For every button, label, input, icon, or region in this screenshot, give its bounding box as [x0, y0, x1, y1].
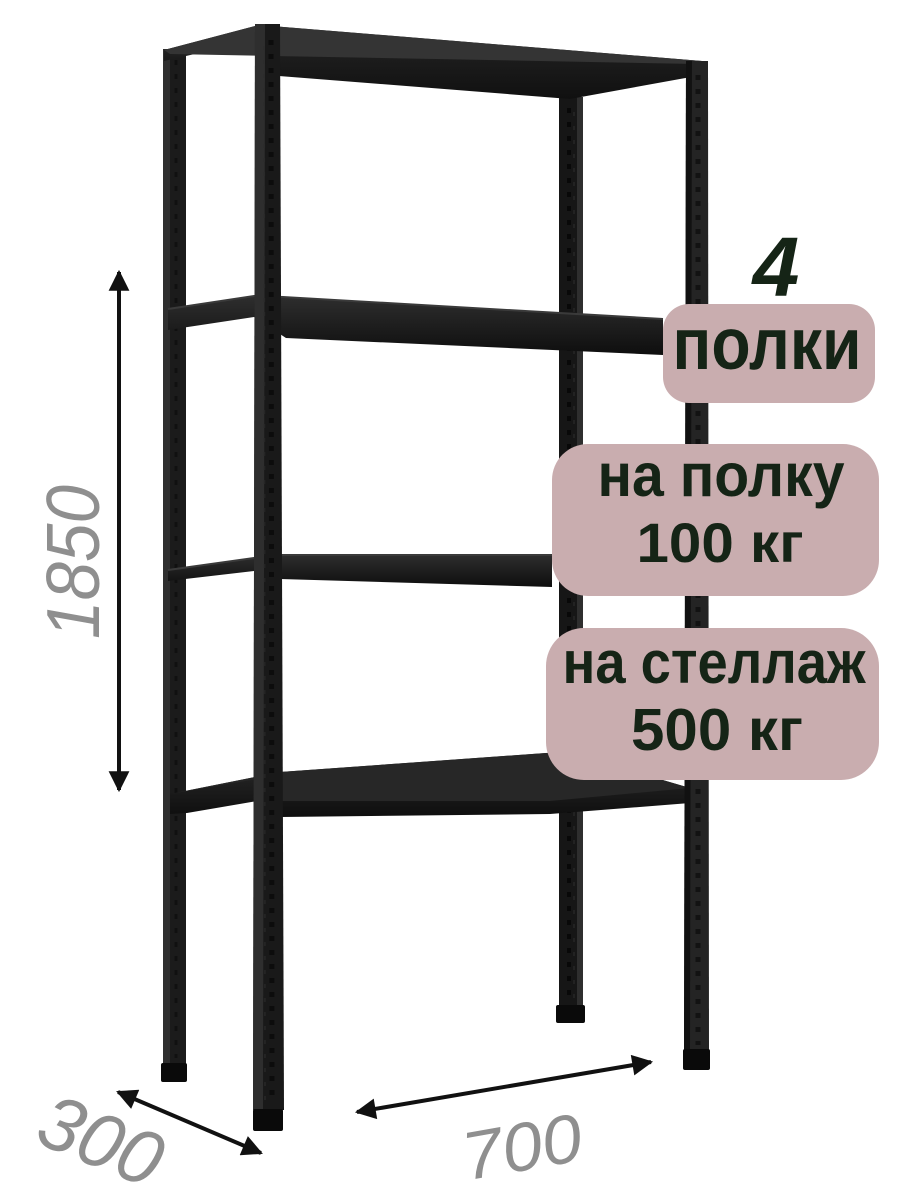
svg-text:700: 700 — [456, 1099, 588, 1195]
svg-text:100 кг: 100 кг — [637, 511, 804, 574]
svg-text:300: 300 — [26, 1077, 175, 1200]
svg-text:на стеллаж: на стеллаж — [563, 629, 867, 696]
svg-text:полки: полки — [673, 304, 862, 385]
svg-text:на полку: на полку — [598, 441, 845, 509]
svg-text:500 кг: 500 кг — [631, 697, 803, 763]
svg-text:1850: 1850 — [31, 485, 115, 639]
svg-text:4: 4 — [751, 220, 800, 314]
